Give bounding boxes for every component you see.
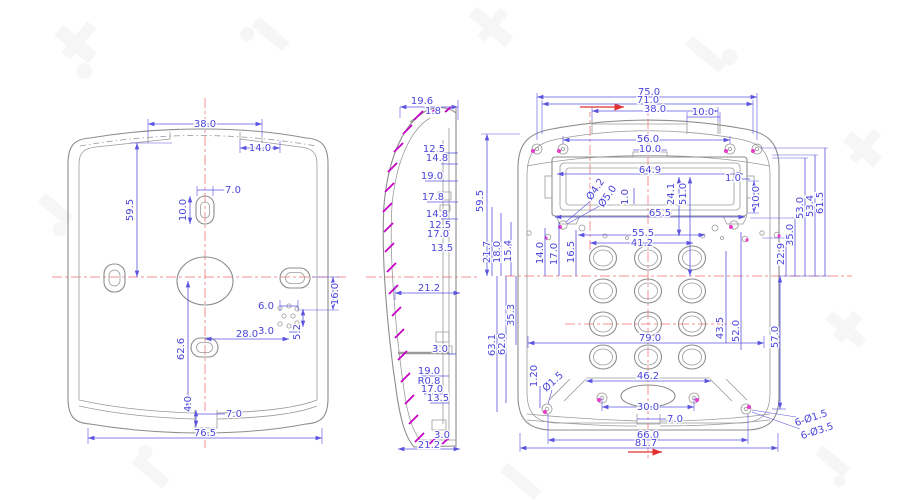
dim-front-c3: 15.4 xyxy=(503,240,514,262)
dim-front-rr6: 57.0 xyxy=(770,326,781,348)
dim-front-k1: 79.0 xyxy=(639,333,661,344)
dim-side-mid-w: 21.2 xyxy=(418,283,440,294)
back-view: 38.0 14.0 59.5 7.0 10.0 6.0 3.0 16.0 5.2… xyxy=(52,98,346,448)
dim-front-hl: 59.5 xyxy=(475,190,486,212)
dim-front-w9: 41.2 xyxy=(631,238,653,249)
dim-front-k3: 52.0 xyxy=(731,320,742,342)
dim-front-c4: 14.0 xyxy=(535,242,546,264)
dim-front-v2: 51.0 xyxy=(678,183,689,205)
front-dimensions: 75.0 71.0 38.0 10.0 56.0 10.0 64.9 1.0 1… xyxy=(475,87,835,452)
dim-front-ll5: Ø1.5 xyxy=(540,369,566,394)
dim-back-grid-w: 6.0 xyxy=(258,301,274,312)
dim-back-grid-h: 5.2 xyxy=(292,324,303,340)
dim-front-bw2: 81.7 xyxy=(635,438,657,449)
dim-front-sp1: 46.2 xyxy=(637,371,659,382)
dim-back-notch-h: 4.0 xyxy=(183,396,194,412)
dim-side-s5: 14.8 xyxy=(426,209,448,220)
technical-drawing: 38.0 14.0 59.5 7.0 10.0 6.0 3.0 16.0 5.2… xyxy=(0,0,900,500)
side-inner-verticals xyxy=(443,128,449,432)
background-watermark xyxy=(29,0,893,500)
side-dimensions: 19.6 1.8 12.5 14.8 19.0 17.8 14.8 12.5 1… xyxy=(395,96,460,451)
dim-side-bot-w: 21.2 xyxy=(418,440,440,451)
back-left-slot xyxy=(104,264,125,292)
dim-front-w3: 38.0 xyxy=(644,104,666,115)
dim-front-r1: 10.0 xyxy=(751,186,762,208)
dim-side-s7: 17.0 xyxy=(427,229,449,240)
dim-front-g1: 1.0 xyxy=(620,189,631,205)
dim-back-height-upper: 59.5 xyxy=(125,199,136,221)
dim-back-height-lower: 62.6 xyxy=(176,338,187,360)
dim-front-w6: 10.0 xyxy=(639,144,661,155)
dim-side-s4: 17.8 xyxy=(422,192,444,203)
dim-side-b4: 13.5 xyxy=(427,393,449,404)
side-view: 19.6 1.8 12.5 14.8 19.0 17.8 14.8 12.5 1… xyxy=(366,96,478,451)
dim-back-grid-col: 3.0 xyxy=(258,326,274,337)
cad-drawing-page: 38.0 14.0 59.5 7.0 10.0 6.0 3.0 16.0 5.2… xyxy=(0,0,900,500)
back-right-slot xyxy=(280,268,310,288)
dim-front-lcd: 64.9 xyxy=(639,165,661,176)
front-view: 75.0 71.0 38.0 10.0 56.0 10.0 64.9 1.0 1… xyxy=(475,87,852,460)
dim-back-total-w: 76.5 xyxy=(194,428,216,439)
dim-front-c2: 18.0 xyxy=(492,241,503,263)
dim-front-ll4: 1.20 xyxy=(529,365,540,387)
dim-side-s3: 19.0 xyxy=(421,171,443,182)
dim-front-sp2: 30.0 xyxy=(637,402,659,413)
dim-front-rr2: 35.0 xyxy=(785,224,796,246)
dim-side-tab: 3.0 xyxy=(432,344,448,355)
dim-front-ll2: 62.0 xyxy=(497,333,508,355)
dim-back-slot-w: 7.0 xyxy=(225,185,241,196)
dim-front-v1: 24.1 xyxy=(666,183,677,205)
dim-back-center-x: 28.0 xyxy=(236,329,258,340)
dim-back-top-width: 38.0 xyxy=(194,119,216,130)
dim-front-w7: 65.5 xyxy=(649,208,671,219)
dim-front-w4: 10.0 xyxy=(692,107,714,118)
dim-back-notch-w: 7.0 xyxy=(226,409,242,420)
dim-side-s2: 14.8 xyxy=(426,153,448,164)
dim-front-c5: 17.0 xyxy=(549,243,560,265)
dim-front-bn: 7.0 xyxy=(667,414,683,425)
dim-front-rr5: 61.5 xyxy=(815,192,826,214)
dim-front-ll3: 35.3 xyxy=(506,304,517,326)
back-body-outline xyxy=(68,129,328,433)
dim-back-top-tab: 14.0 xyxy=(249,143,271,154)
dim-back-slot-h: 10.0 xyxy=(178,199,189,221)
dim-side-s8: 13.5 xyxy=(431,243,453,254)
dim-back-grid-right: 16.0 xyxy=(330,283,341,305)
dim-front-k2: 43.5 xyxy=(715,317,726,339)
dim-side-lip: 1.8 xyxy=(425,106,441,117)
back-left-slot-inner xyxy=(109,270,120,286)
dim-front-e1: 1.0 xyxy=(725,173,741,184)
dim-front-c6: 16.5 xyxy=(566,241,577,263)
back-right-slot-inner xyxy=(286,273,305,284)
